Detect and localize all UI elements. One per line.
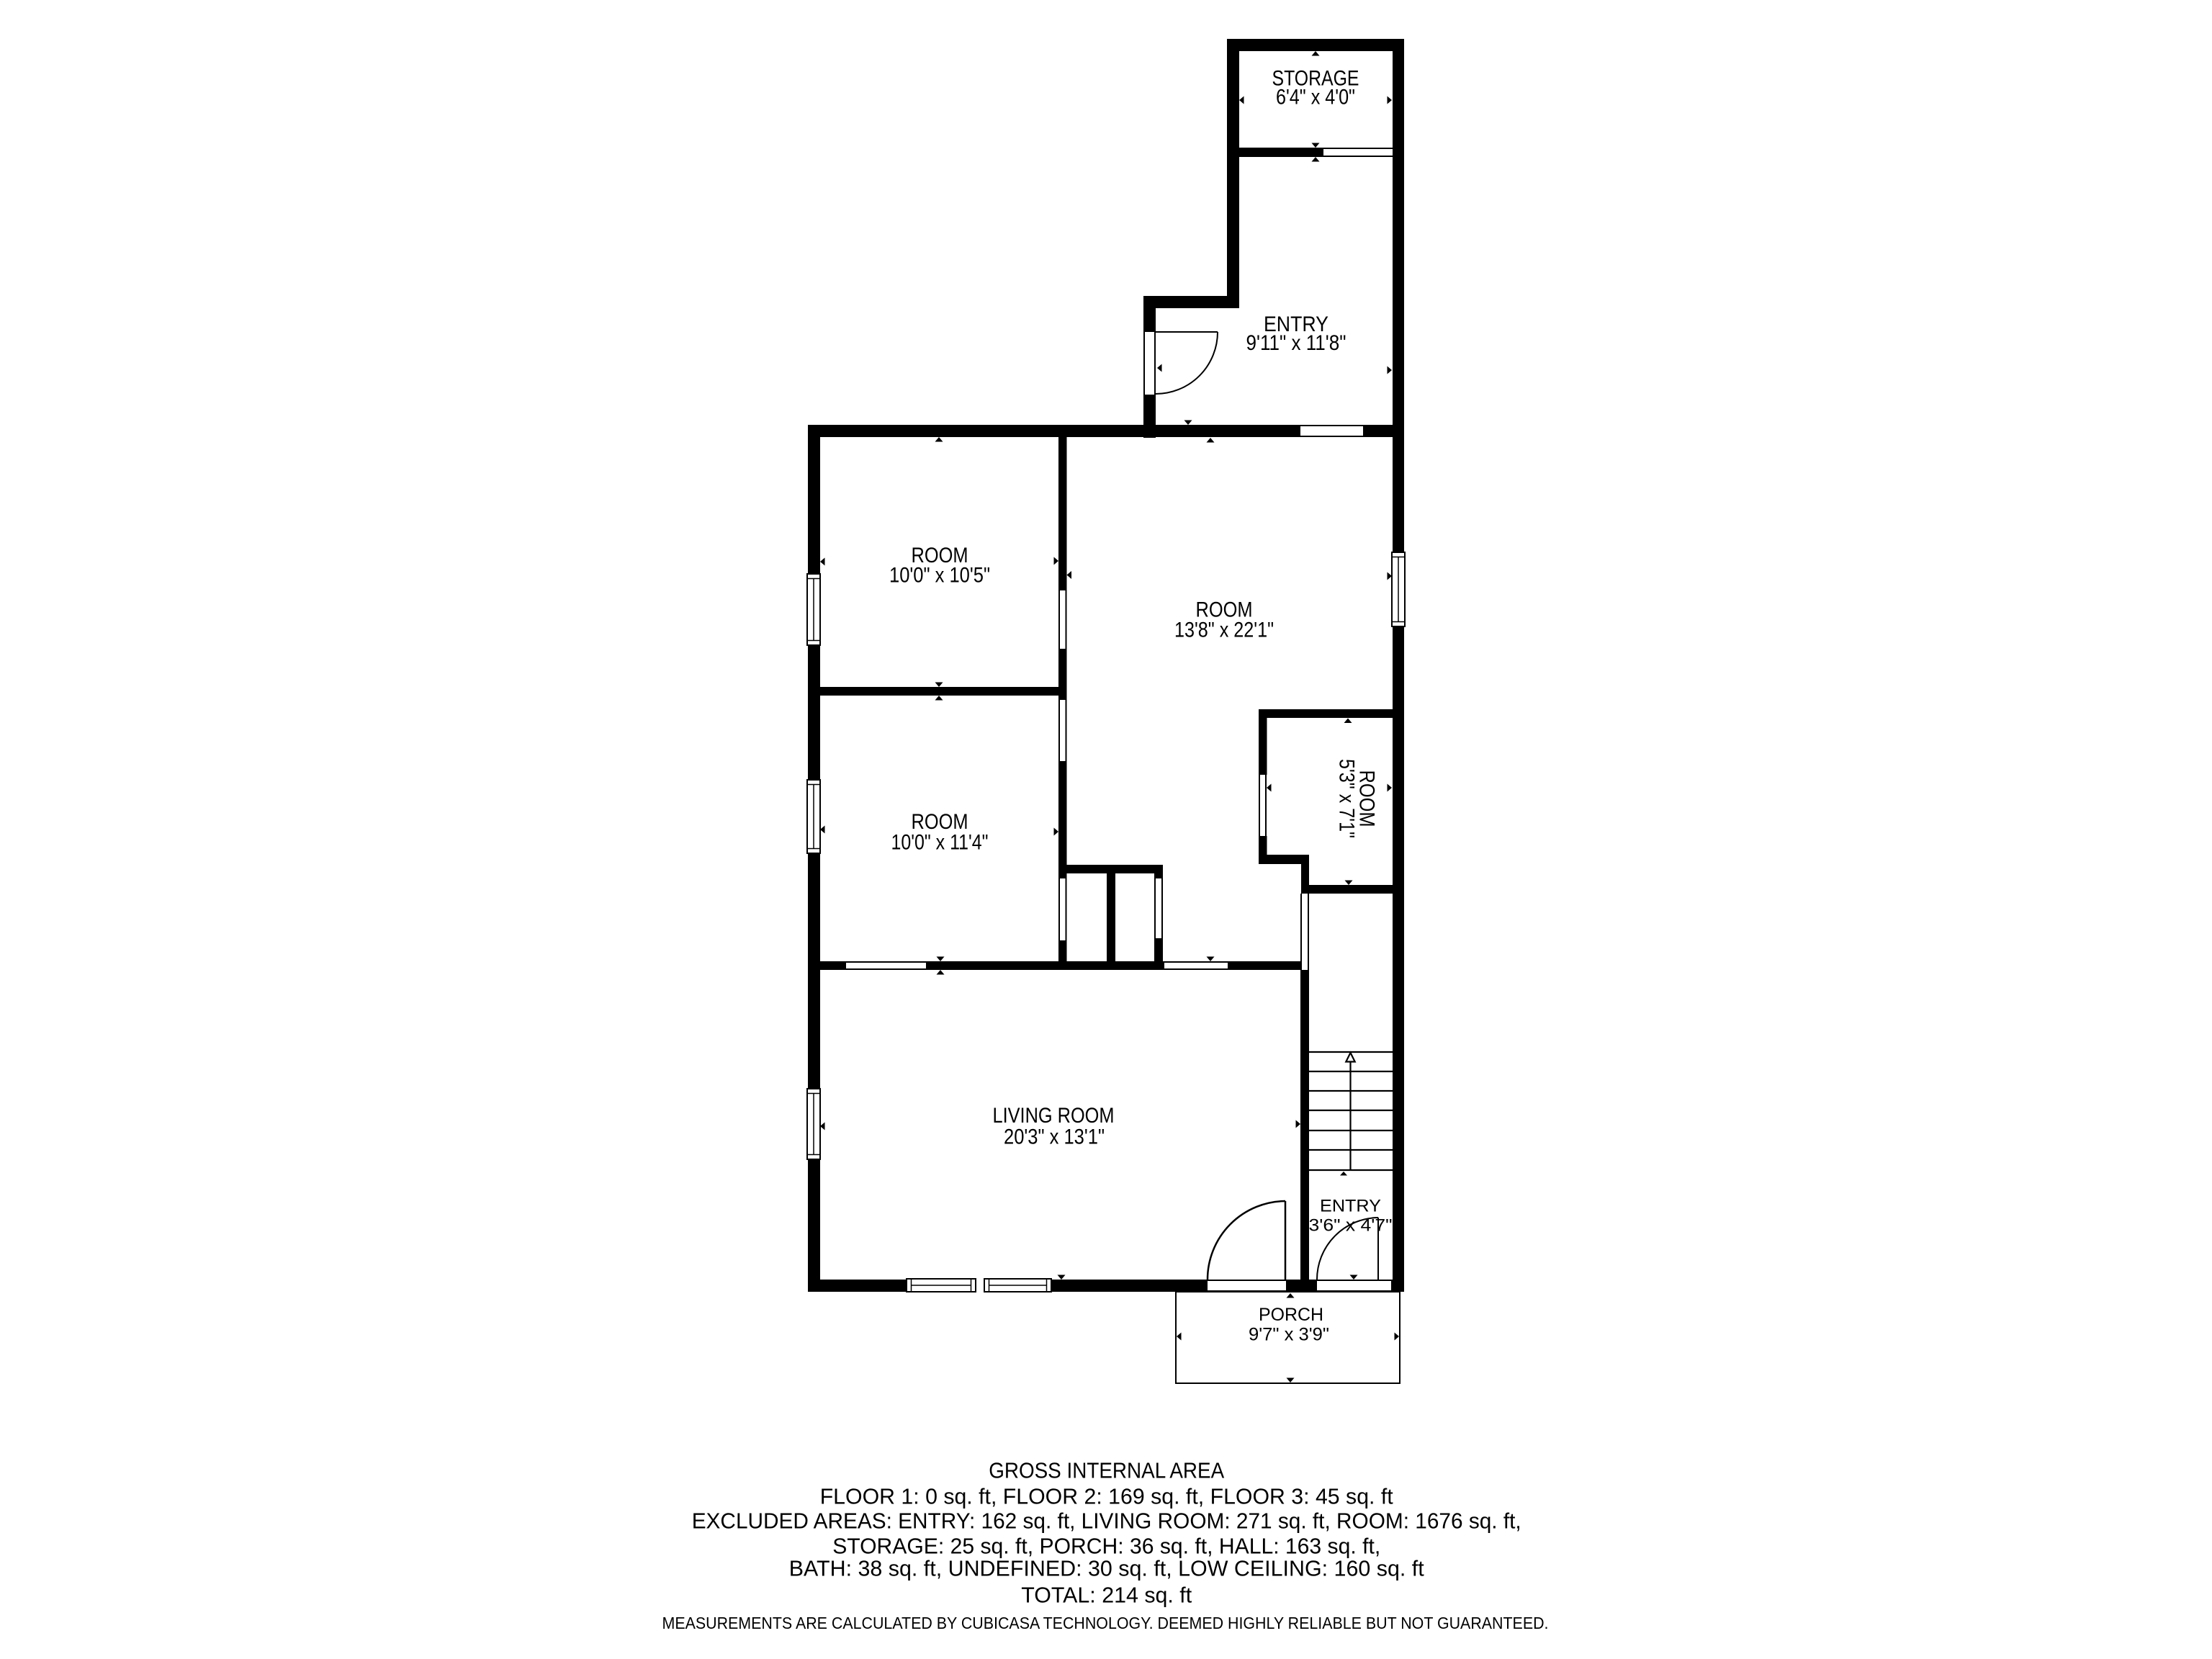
svg-text:9'7" x 3'9": 9'7" x 3'9" <box>1249 1325 1329 1345</box>
svg-text:20'3" x 13'1": 20'3" x 13'1" <box>1004 1125 1105 1148</box>
svg-text:10'0" x 11'4": 10'0" x 11'4" <box>891 830 989 854</box>
svg-text:ENTRY: ENTRY <box>1320 1196 1381 1215</box>
svg-text:9'11" x 11'8": 9'11" x 11'8" <box>1246 331 1346 355</box>
svg-text:BATH: 38 sq. ft, UNDEFINED: 30: BATH: 38 sq. ft, UNDEFINED: 30 sq. ft, L… <box>789 1556 1424 1581</box>
svg-text:FLOOR 1: 0 sq. ft, FLOOR 2: 16: FLOOR 1: 0 sq. ft, FLOOR 2: 169 sq. ft, … <box>820 1484 1393 1509</box>
svg-text:TOTAL: 214 sq. ft: TOTAL: 214 sq. ft <box>1021 1583 1192 1608</box>
svg-text:STORAGE: 25 sq. ft, PORCH: 36: STORAGE: 25 sq. ft, PORCH: 36 sq. ft, HA… <box>832 1534 1380 1559</box>
svg-text:6'4" x 4'0": 6'4" x 4'0" <box>1276 85 1355 109</box>
svg-text:10'0" x 10'5": 10'0" x 10'5" <box>889 563 990 587</box>
svg-text:LIVING ROOM: LIVING ROOM <box>993 1104 1115 1128</box>
svg-text:5'3" x 7'1": 5'3" x 7'1" <box>1335 759 1359 838</box>
svg-text:13'8" x 22'1": 13'8" x 22'1" <box>1174 618 1274 642</box>
svg-text:3'6" x 4'7": 3'6" x 4'7" <box>1309 1215 1393 1235</box>
svg-text:PORCH: PORCH <box>1259 1305 1323 1325</box>
svg-text:MEASUREMENTS ARE CALCULATED BY: MEASUREMENTS ARE CALCULATED BY CUBICASA … <box>662 1614 1549 1632</box>
svg-text:EXCLUDED AREAS: ENTRY: 162 sq.: EXCLUDED AREAS: ENTRY: 162 sq. ft, LIVIN… <box>692 1509 1521 1534</box>
svg-text:GROSS INTERNAL AREA: GROSS INTERNAL AREA <box>989 1458 1224 1483</box>
